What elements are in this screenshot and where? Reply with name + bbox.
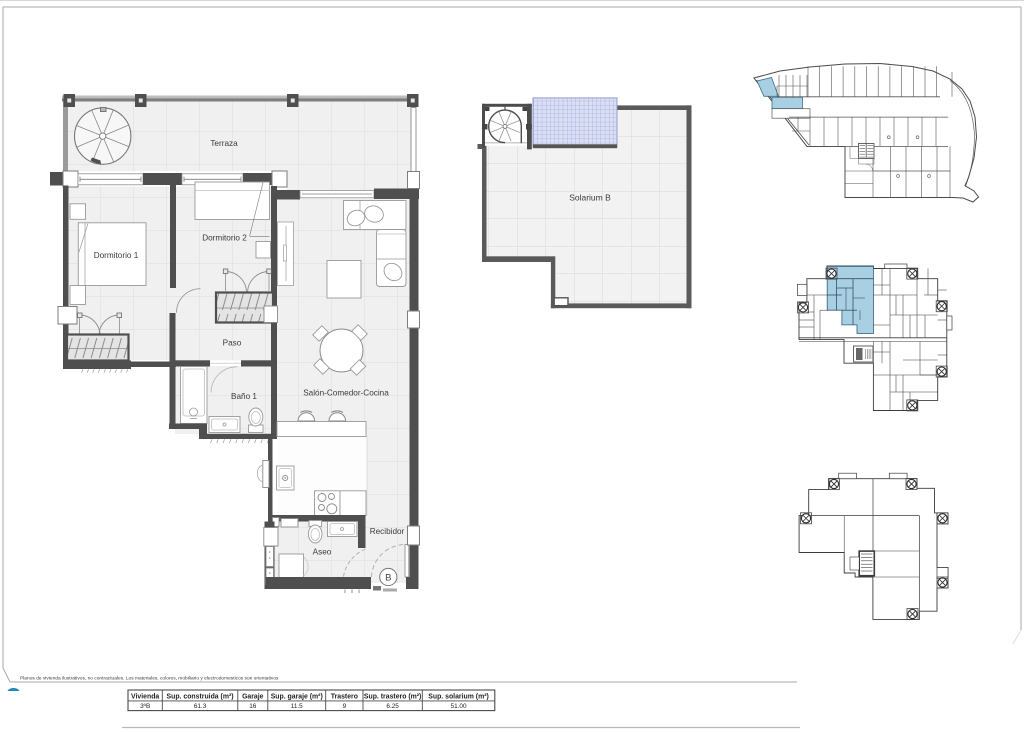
svg-text:Terraza: Terraza (210, 139, 238, 148)
svg-text:Solarium B: Solarium B (569, 193, 611, 203)
svg-text:Salón-Comedor-Cocina: Salón-Comedor-Cocina (303, 389, 389, 398)
svg-text:16: 16 (249, 703, 257, 710)
svg-text:Sup. garaje (m²): Sup. garaje (m²) (271, 693, 323, 700)
svg-text:Recibidor: Recibidor (370, 527, 405, 536)
svg-text:Trastero: Trastero (331, 693, 358, 700)
svg-text:3ºB: 3ºB (140, 703, 150, 710)
svg-text:Sup. solarium (m²): Sup. solarium (m²) (428, 693, 489, 700)
svg-text:Garaje: Garaje (242, 693, 264, 700)
svg-text:61.3: 61.3 (194, 703, 207, 710)
svg-text:Dormitorio 1: Dormitorio 1 (94, 251, 139, 260)
svg-text:Sup. construida (m²): Sup. construida (m²) (167, 693, 234, 700)
svg-text:9: 9 (343, 703, 347, 710)
svg-text:6.25: 6.25 (386, 703, 399, 710)
svg-text:Planos de vivienda ilustrativo: Planos de vivienda ilustrativos, no cont… (20, 676, 279, 682)
svg-text:Sup. trastero (m²): Sup. trastero (m²) (364, 693, 421, 700)
svg-text:Baño 1: Baño 1 (231, 392, 257, 401)
svg-text:Paso: Paso (223, 339, 242, 348)
svg-text:11.5: 11.5 (291, 703, 303, 710)
svg-text:Vivienda: Vivienda (131, 693, 159, 700)
svg-text:51.00: 51.00 (451, 703, 467, 710)
svg-text:Dormitorio 2: Dormitorio 2 (202, 234, 247, 243)
svg-text:Aseo: Aseo (313, 548, 332, 557)
svg-text:B: B (385, 573, 391, 584)
